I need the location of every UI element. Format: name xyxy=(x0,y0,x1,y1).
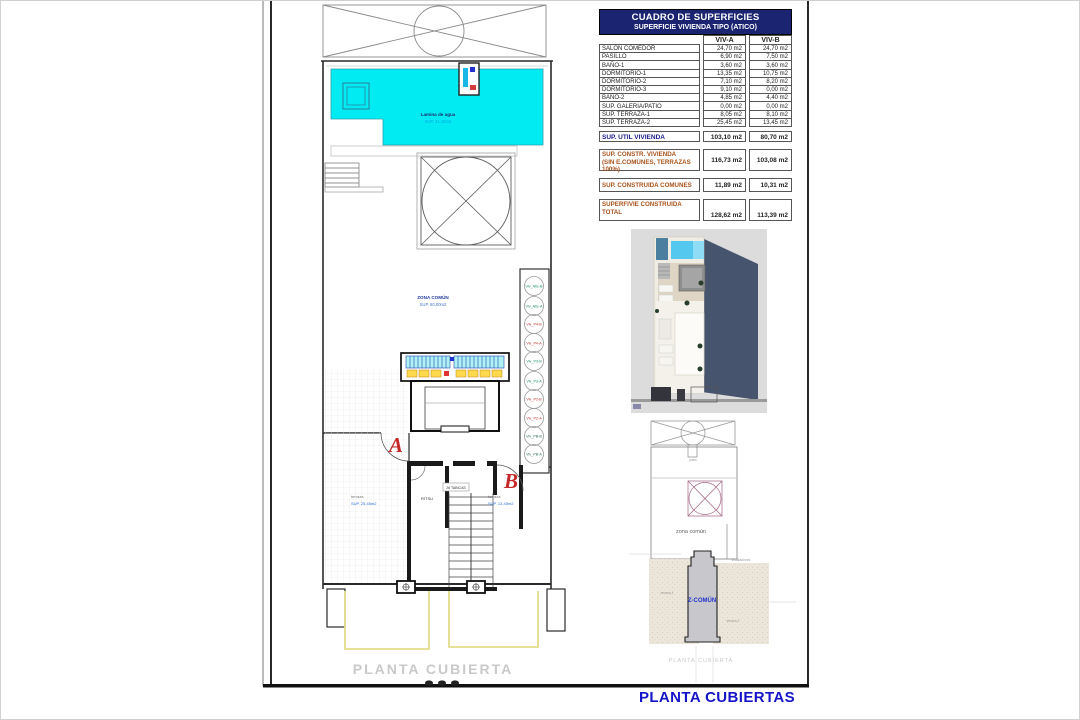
surface-table-title: CUADRO DE SUPERFICIES xyxy=(600,12,791,23)
top-skylight xyxy=(323,5,546,57)
zona-comun-label: ZONA COMÚN xyxy=(417,294,449,300)
stair-risers-label: 26 TABICAS xyxy=(446,486,466,490)
keyplan-skylight xyxy=(688,481,722,516)
total-label-line2: TOTAL xyxy=(602,209,699,217)
util-total-row: SUP. UTIL VIVIENDA 103,10 m2 80,70 m2 xyxy=(599,131,792,142)
pool: Lamina de agua SUP. 31,15m2 xyxy=(331,63,543,156)
drawing-sheet: Lamina de agua SUP. 31,15m2 ZONA COMÚN S… xyxy=(0,0,1080,720)
keyplan-terraza2-label: terraza-2 xyxy=(727,619,740,623)
pool-ladder xyxy=(459,63,479,95)
pool-walkway xyxy=(331,146,517,156)
keyplan-terraza1-label: terraza-1 xyxy=(661,591,674,595)
pool-label: Lamina de agua xyxy=(421,112,456,117)
terraza-left-label: terraza xyxy=(351,494,364,499)
vent-label: Viv_PB-A xyxy=(526,453,542,457)
terraza-right-area: SUP. 13,45m2 xyxy=(488,501,514,506)
sheet-title: PLANTA CUBIERTAS xyxy=(619,689,815,706)
section-marker-a: A xyxy=(387,433,403,457)
constr-label-line2: (sin E.Comunes, terrazas 100%) xyxy=(602,159,699,174)
keyplan-zona-comun-label: zona común xyxy=(676,529,706,535)
ritsu-room-label: RITSU xyxy=(421,496,433,501)
plan-caption: PLANTA CUBIERTA xyxy=(353,661,513,677)
vent-grille xyxy=(325,163,383,192)
keyplan-zcomun-label: Z-COMÚN xyxy=(688,597,716,604)
terraza-left-area: SUP. 25,45m2 xyxy=(351,501,377,506)
vent-label: Viv_P2-A xyxy=(526,417,542,421)
total-label-line1: SUPERFIVIE CONSTRUIDA xyxy=(602,201,699,209)
section-marker-b: B xyxy=(503,469,518,493)
zona-comun-area: SUP. 60,00m2 xyxy=(420,302,447,307)
terraza-right-label: terraza xyxy=(488,494,501,499)
vent-label: Viv_P4-A xyxy=(526,342,542,346)
surface-table-header: CUADRO DE SUPERFICIES SUPERFICIE VIVIEND… xyxy=(599,9,792,35)
pool-area-label: SUP. 31,15m2 xyxy=(425,119,452,124)
terrace-dashed-outline xyxy=(345,591,538,649)
main-roof-plan: Lamina de agua SUP. 31,15m2 ZONA COMÚN S… xyxy=(321,5,565,686)
vent-label: Viv_Atic-B xyxy=(526,285,543,289)
vent-stack-column: Viv_Atic-B Viv_Atic-A Viv_P4-B Viv_P4-A … xyxy=(520,269,549,473)
total-row: SUPERFIVIE CONSTRUIDA TOTAL 128,62 m2 11… xyxy=(599,199,792,221)
constr-label-line1: SUP. CONSTR. VIVIENDA xyxy=(602,151,699,159)
vent-label: Viv_P3-A xyxy=(526,380,542,384)
terrace-floor-grid xyxy=(325,369,407,583)
table-row: SUP. TERRAZA-225,45 m213,45 m2 xyxy=(599,118,792,127)
surface-table: CUADRO DE SUPERFICIES SUPERFICIE VIVIEND… xyxy=(599,9,792,221)
comunes-row: SUP. CONSTRUIDA COMUNES 11,89 m2 10,31 m… xyxy=(599,178,792,192)
surface-table-subtitle: SUPERFICIE VIVIENDA TIPO (ATICO) xyxy=(600,24,791,31)
vent-label: Viv_Atic-A xyxy=(526,305,543,309)
keyplan-caption: PLANTA CUBIERTA xyxy=(669,658,734,664)
clipped-dimension-text xyxy=(425,680,459,685)
door-arc xyxy=(411,466,425,480)
vent-label: Viv_P3-B xyxy=(526,360,542,364)
constr-vivienda-row: SUP. CONSTR. VIVIENDA (sin E.Comunes, te… xyxy=(599,149,792,171)
keyplan-instalaciones-label: instalaciones xyxy=(732,558,751,562)
stairs xyxy=(449,493,493,587)
vent-label: Viv_P2-B xyxy=(526,398,542,402)
elevator xyxy=(411,381,499,432)
surface-table-rows: SALON COMEDOR24,70 m224,70 m2 PASILLO6,9… xyxy=(599,44,792,127)
key-plan: patio zona común Z-COMÚN terraza-1 terra… xyxy=(629,421,796,683)
roof-plan-drawing: Lamina de agua SUP. 31,15m2 ZONA COMÚN S… xyxy=(1,1,1079,719)
keyplan-patio-label: patio xyxy=(689,458,696,462)
main-skylight xyxy=(417,153,515,249)
vent-label: Viv_P4-B xyxy=(526,323,542,327)
solar-panels xyxy=(401,353,509,381)
render-3d xyxy=(631,229,767,413)
vent-label: Viv_PB-B xyxy=(526,435,542,439)
keyplan-terraza-2 xyxy=(713,563,769,644)
